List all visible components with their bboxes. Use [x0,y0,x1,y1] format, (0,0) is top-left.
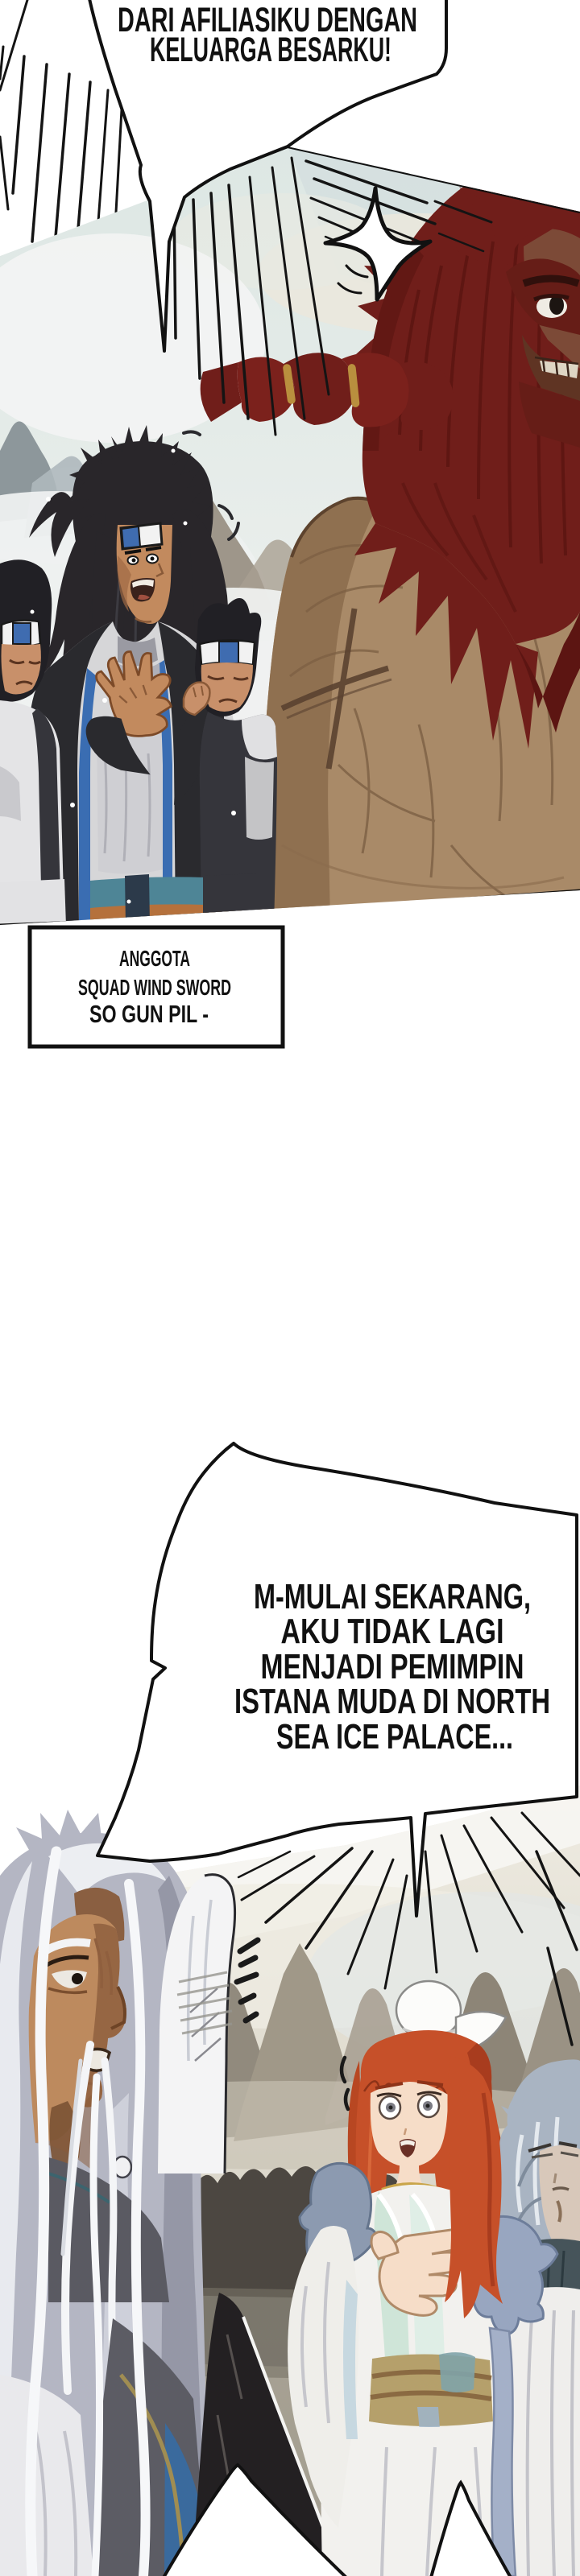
svg-text:SO GUN PIL -: SO GUN PIL - [89,1000,209,1028]
svg-text:ANGGOTA: ANGGOTA [119,946,190,971]
svg-text:KELUARGA BESARKU!: KELUARGA BESARKU! [150,31,391,69]
svg-text:SEA ICE PALACE...: SEA ICE PALACE... [276,1717,513,1757]
svg-text:M-MULAI SEKARANG,: M-MULAI SEKARANG, [254,1577,531,1616]
svg-text:ISTANA MUDA DI NORTH: ISTANA MUDA DI NORTH [234,1682,550,1721]
svg-text:SQUAD WIND SWORD: SQUAD WIND SWORD [78,975,231,1000]
svg-text:AKU TIDAK LAGI: AKU TIDAK LAGI [281,1612,504,1651]
svg-text:MENJADI PEMIMPIN: MENJADI PEMIMPIN [261,1647,524,1686]
